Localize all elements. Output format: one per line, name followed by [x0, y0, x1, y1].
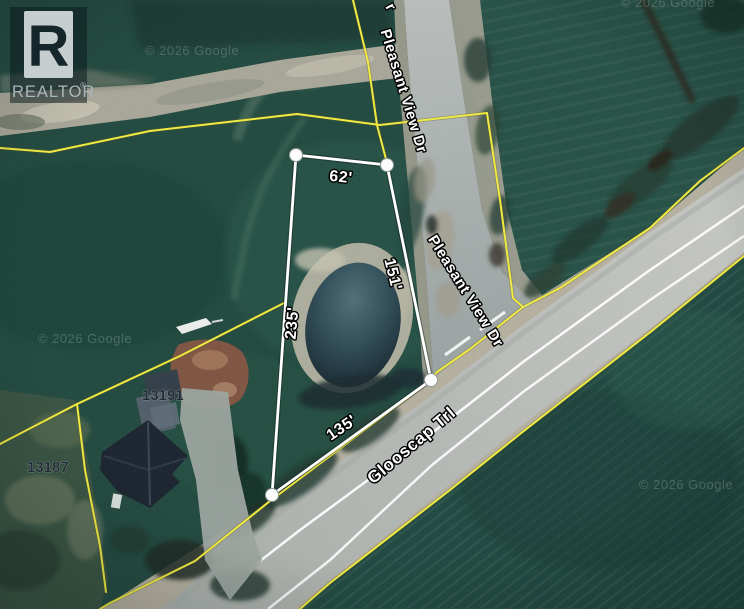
satellite-map-image[interactable]: 62' 151' 235' 135' Glooscap Trl Pleasant…	[0, 0, 744, 609]
google-watermark: © 2026 Google	[38, 331, 132, 346]
google-watermark: © 2026 Google	[639, 477, 733, 492]
realtor-logo-letter: R	[28, 14, 70, 79]
lot-left-measurement: 235'	[283, 306, 303, 340]
registered-trademark-symbol: ®	[80, 81, 86, 90]
lot-front-measurement: 62'	[328, 168, 353, 187]
realtor-logo: R REALTOR ®	[10, 7, 95, 103]
satellite-map: 62' 151' 235' 135' Glooscap Trl Pleasant…	[0, 0, 744, 609]
house-number-13187: 13187	[27, 460, 69, 476]
google-watermark: © 2026 Google	[145, 43, 239, 58]
house-number-13191: 13191	[142, 388, 184, 404]
vignette	[0, 0, 744, 609]
google-watermark: © 2026 Google	[621, 0, 715, 10]
